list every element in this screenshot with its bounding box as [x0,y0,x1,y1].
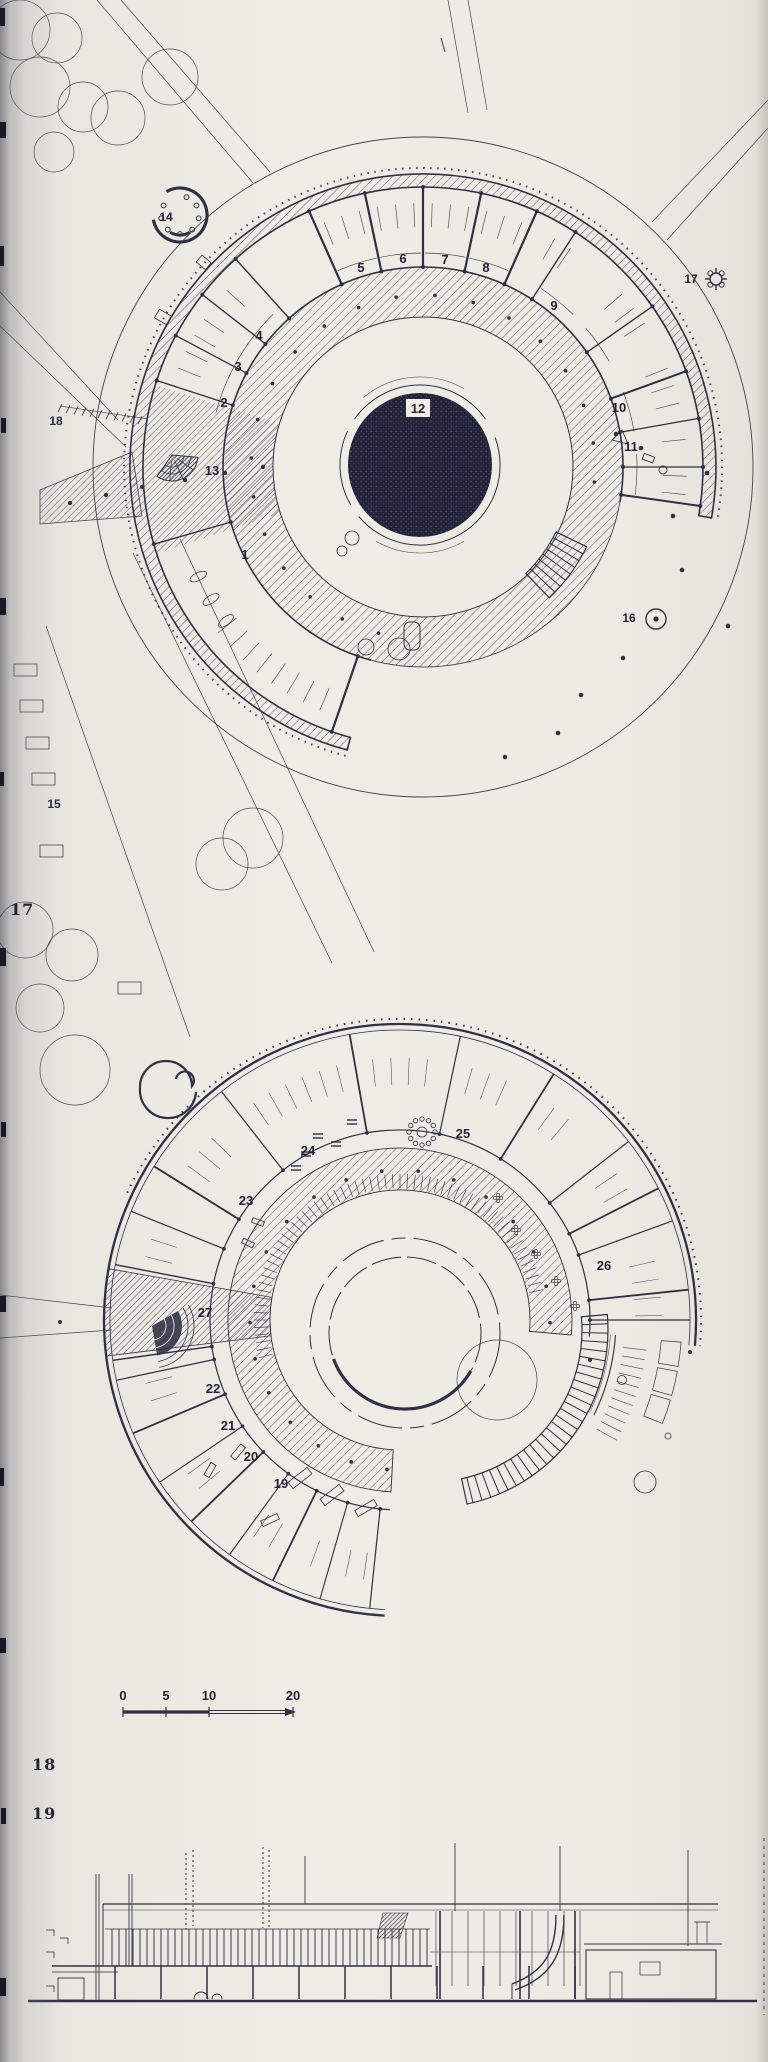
page-edge-artifact [0,598,6,615]
scale-label-0: 0 [110,1688,136,1703]
page-edge-artifact [0,1638,6,1653]
site-label-15: 15 [47,797,61,811]
site-label-17: 17 [684,272,698,286]
room-label-6: 6 [399,251,406,266]
room-label-3: 3 [234,359,241,374]
page-edge-artifact [1,418,6,433]
room-label-11: 11 [624,439,638,454]
page-edge-artifact [0,246,4,266]
room-label-13: 13 [205,463,219,478]
page-edge-artifact [0,1296,6,1312]
room-label-12: 12 [411,401,425,416]
page-edge-artifact [0,1978,6,1996]
scale-label-20: 20 [280,1688,306,1703]
site-label-18: 18 [49,414,63,428]
scale-label-10: 10 [196,1688,222,1703]
architectural-drawing: 1234567891011131415161718121920212223242… [0,0,768,2062]
page-edge-artifact [0,8,5,26]
building-section [28,1838,764,2015]
room-label-4: 4 [255,328,263,343]
room-label-26: 26 [597,1258,611,1273]
room-label-2: 2 [220,395,227,410]
room-label-27: 27 [198,1305,212,1320]
room-label-22: 22 [206,1381,220,1396]
page-edge-artifact [1,1808,6,1824]
page-edge-artifact [0,948,6,966]
scale-label-5: 5 [153,1688,179,1703]
room-label-24: 24 [301,1143,316,1158]
figure-number-19: 19 [32,1804,56,1823]
site-label-16: 16 [622,611,636,625]
site-label-14: 14 [159,210,173,224]
room-label-23: 23 [239,1193,253,1208]
figure-number-17: 17 [10,900,34,919]
room-label-9: 9 [550,298,557,313]
scale-bar [123,1707,296,1717]
page-edge-artifact [0,122,6,138]
room-label-7: 7 [441,252,448,267]
figure-number-18: 18 [32,1755,56,1774]
page-edge-artifact [1,1122,6,1137]
room-label-1: 1 [241,547,248,562]
room-label-25: 25 [456,1126,470,1141]
site-plan-upper [0,0,768,1105]
room-label-20: 20 [244,1449,258,1464]
room-label-8: 8 [482,260,489,275]
room-label-21: 21 [221,1418,235,1433]
room-label-5: 5 [357,260,364,275]
floor-plan-lower [0,1019,701,1616]
room-label-19: 19 [274,1476,288,1491]
scanned-page: 1234567891011131415161718121920212223242… [0,0,768,2062]
room-label-10: 10 [612,400,626,415]
page-edge-artifact [0,772,4,786]
page-edge-artifact [0,1468,4,1486]
